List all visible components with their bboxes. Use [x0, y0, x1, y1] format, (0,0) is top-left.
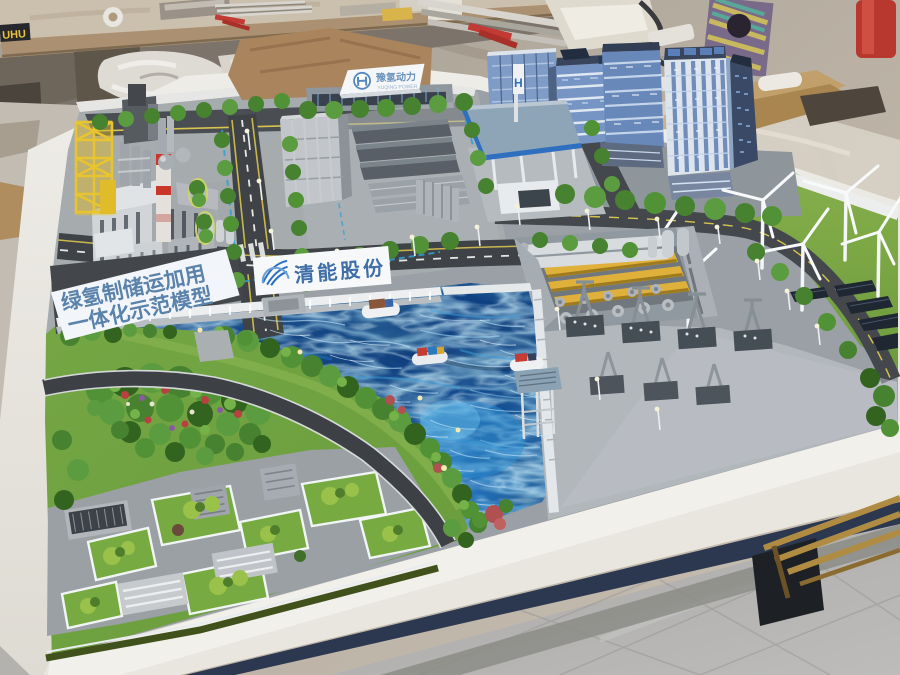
svg-text:H: H — [514, 76, 523, 90]
svg-text:UHU: UHU — [2, 28, 27, 42]
